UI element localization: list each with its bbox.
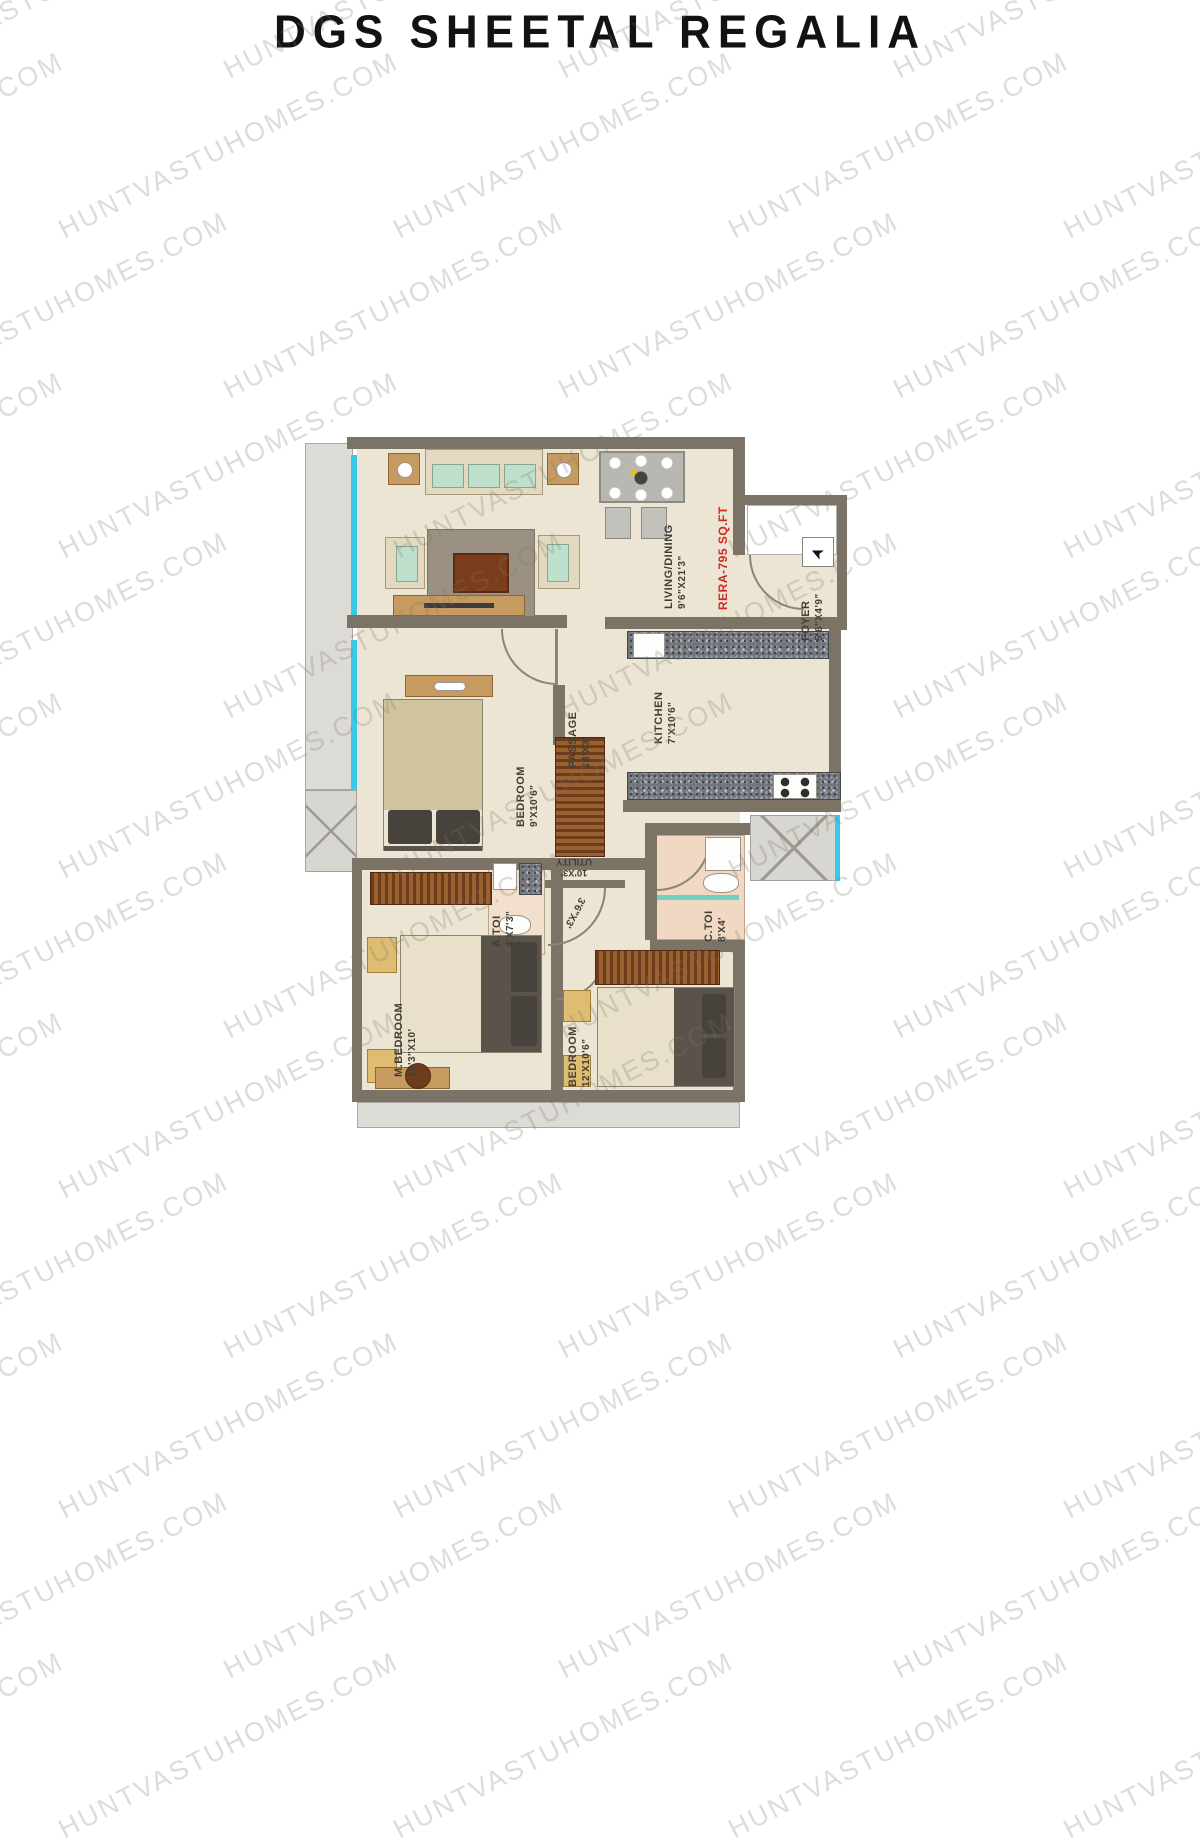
watermark-text: HUNTVASTUHOMES.COM (0, 1006, 69, 1205)
watermark-text: HUNTVASTUHOMES.COM (54, 1646, 404, 1845)
bed-pillow (436, 810, 480, 844)
wall-top (347, 437, 745, 449)
wall-ctoi-left (645, 823, 657, 940)
watermark-text: HUNTVASTUHOMES.COM (889, 1166, 1200, 1365)
page-title: DGS SHEETAL REGALIA (0, 7, 1200, 60)
tv (424, 603, 494, 608)
door-leaf-bedroom-top (555, 629, 558, 685)
watermark-text: HUNTVASTUHOMES.COM (724, 46, 1074, 245)
bed-pillow (702, 1038, 726, 1078)
watermark-text: HUNTVASTUHOMES.COM (1059, 366, 1200, 565)
room-label-atoi: A.TOI 4'X7'3" (491, 867, 516, 947)
watermark-text: HUNTVASTUHOMES.COM (554, 1166, 904, 1365)
bed-blanket (384, 700, 482, 810)
watermark-text: HUNTVASTUHOMES.COM (0, 206, 234, 405)
lamp (556, 462, 572, 478)
balcony-strip (305, 443, 353, 790)
room-dims: 7'X10'6" (667, 649, 679, 744)
sofa-cushion (432, 464, 464, 488)
room-label-kitchen: KITCHEN 7'X10'6" (653, 649, 678, 744)
shaft-right (750, 815, 838, 881)
room-label-master: M.BEDROOM 12'3"X10' (393, 947, 418, 1077)
ctoi-basin (705, 837, 741, 871)
atoi-shower (519, 863, 542, 895)
dresser-bedroom-top (405, 675, 493, 697)
shaft-left (305, 790, 357, 872)
watermark-text: HUNTVASTUHOMES.COM (219, 206, 569, 405)
watermark-text: HUNTVASTUHOMES.COM (54, 1326, 404, 1525)
room-name: PASSAGE (567, 662, 580, 768)
dresser-item (434, 682, 466, 691)
sofa-cushion (468, 464, 500, 488)
watermark-text: HUNTVASTUHOMES.COM (54, 46, 404, 245)
watermark-text: HUNTVASTUHOMES.COM (219, 1166, 569, 1365)
window-living (351, 455, 357, 615)
watermark-text: HUNTVASTUHOMES.COM (0, 46, 69, 245)
sofa-three-seat (425, 449, 543, 495)
watermark-text: HUNTVASTUHOMES.COM (1059, 46, 1200, 245)
outside-bottom-left (305, 872, 352, 1132)
lamp (397, 462, 413, 478)
wall-right-upper (733, 437, 745, 555)
bed-bedroom-right (597, 987, 735, 1087)
room-label-bedroom-right: BEDROOM 12'X10'6" (567, 989, 592, 1087)
room-label-passage: PASSAGE 14'X3' (567, 662, 592, 768)
watermark-text: HUNTVASTUHOMES.COM (0, 1646, 69, 1845)
side-table-lamp-left (388, 453, 420, 485)
room-label-ctoi: C.TOI 8'X4' (703, 900, 728, 942)
ctoi-wc (703, 873, 739, 893)
side-table-lamp-right (547, 453, 579, 485)
bed-bedroom-top (383, 699, 483, 851)
wall-landing-right (837, 505, 847, 630)
watermark-text: HUNTVASTUHOMES.COM (0, 686, 69, 885)
watermark-text: HUNTVASTUHOMES.COM (0, 526, 234, 725)
room-dims: 4'X7'3" (505, 867, 517, 947)
watermark-text: HUNTVASTUHOMES.COM (0, 1486, 234, 1685)
bed-pillow (511, 996, 537, 1046)
stove (773, 774, 817, 799)
wall-left-lower (352, 870, 362, 1090)
watermark-text: HUNTVASTUHOMES.COM (889, 1486, 1200, 1685)
room-label-bedroom-top: BEDROOM 9'X10'6" (515, 702, 540, 827)
watermark-text: HUNTVASTUHOMES.COM (1059, 1326, 1200, 1525)
watermark-text: HUNTVASTUHOMES.COM (554, 1486, 904, 1685)
room-name: KITCHEN (653, 649, 666, 744)
room-name: BEDROOM (567, 989, 580, 1087)
watermark-text: HUNTVASTUHOMES.COM (0, 1166, 234, 1365)
watermark-text: HUNTVASTUHOMES.COM (724, 1326, 1074, 1525)
watermark-text: HUNTVASTUHOMES.COM (389, 1326, 739, 1525)
dining-chair (605, 507, 631, 539)
watermark-text: HUNTVASTUHOMES.COM (0, 846, 234, 1045)
room-label-living: LIVING/DINING 9'6"X21'3" (663, 497, 688, 609)
watermark-text: HUNTVASTUHOMES.COM (889, 846, 1200, 1045)
bed-blanket (598, 988, 674, 1086)
watermark-text: HUNTVASTUHOMES.COM (554, 206, 904, 405)
bed-pillow (388, 810, 432, 844)
wall-kitchen-bottom (623, 800, 841, 812)
wardrobe-bedroom-right (595, 950, 720, 985)
wall-passage-left (553, 685, 565, 745)
watermark-text: HUNTVASTUHOMES.COM (219, 1486, 569, 1685)
watermark-text: HUNTVASTUHOMES.COM (889, 206, 1200, 405)
room-label-foyer: FOYER 5'6"X4'9" (800, 559, 825, 641)
wall-bottom (352, 1090, 745, 1102)
bed-headboard (384, 846, 482, 851)
watermark-text: HUNTVASTUHOMES.COM (724, 1646, 1074, 1845)
rera-label: RERA-795 SQ.FT (717, 505, 731, 610)
wall-landing-top (745, 495, 847, 505)
room-dims: 5'6"X4'9" (814, 559, 826, 641)
watermark-text: HUNTVASTUHOMES.COM (389, 46, 739, 245)
room-name: FOYER (800, 559, 813, 641)
bed-master (400, 935, 542, 1053)
room-dims: 12'3"X10' (407, 947, 419, 1077)
window-bedroom-top (351, 640, 357, 790)
armchair-left (385, 537, 425, 589)
bed-pillow (511, 942, 537, 992)
room-name: UTILITY (556, 855, 592, 866)
watermark-text: HUNTVASTUHOMES.COM (1059, 686, 1200, 885)
wall-ctoi-top (645, 823, 750, 835)
room-dims: 10'X3' (561, 866, 588, 877)
armchair-cushion (396, 546, 418, 582)
room-name: BEDROOM (515, 702, 528, 827)
armchair-right (538, 535, 580, 589)
outside-bottom-right (745, 881, 845, 1132)
watermark-text: HUNTVASTUHOMES.COM (889, 526, 1200, 725)
bed-pillow (702, 994, 726, 1034)
watermark-text: HUNTVASTUHOMES.COM (0, 366, 69, 565)
tv-console (393, 595, 525, 616)
wardrobe-master (370, 872, 492, 905)
room-name: A.TOI (491, 867, 504, 947)
outside-top-right (745, 437, 845, 495)
coffee-table (453, 553, 509, 593)
rera-text: RERA-795 SQ.FT (717, 505, 731, 610)
dining-table (599, 451, 685, 503)
room-dims: 9'6"X21'3" (677, 497, 689, 609)
bottom-ledge (357, 1102, 740, 1128)
room-dims: 14'X3' (581, 662, 593, 768)
room-dims: 8'X4' (717, 900, 729, 942)
room-name: M.BEDROOM (393, 947, 406, 1077)
watermark-text: HUNTVASTUHOMES.COM (1059, 1006, 1200, 1205)
room-dims: 12'X10'6" (581, 989, 593, 1087)
floor-plan: ➤ (305, 437, 845, 1132)
window-shaft-right (835, 815, 840, 881)
sofa-cushion (504, 464, 536, 488)
room-label-utility: UTILITY 10'X3' (545, 855, 603, 877)
watermark-text: HUNTVASTUHOMES.COM (0, 1326, 69, 1525)
room-name: LIVING/DINING (663, 497, 676, 609)
room-name: C.TOI (703, 900, 716, 942)
watermark-text: HUNTVASTUHOMES.COM (389, 1646, 739, 1845)
watermark-text: HUNTVASTUHOMES.COM (1059, 1646, 1200, 1845)
room-dims: 9'X10'6" (529, 702, 541, 827)
armchair-cushion (547, 544, 569, 582)
